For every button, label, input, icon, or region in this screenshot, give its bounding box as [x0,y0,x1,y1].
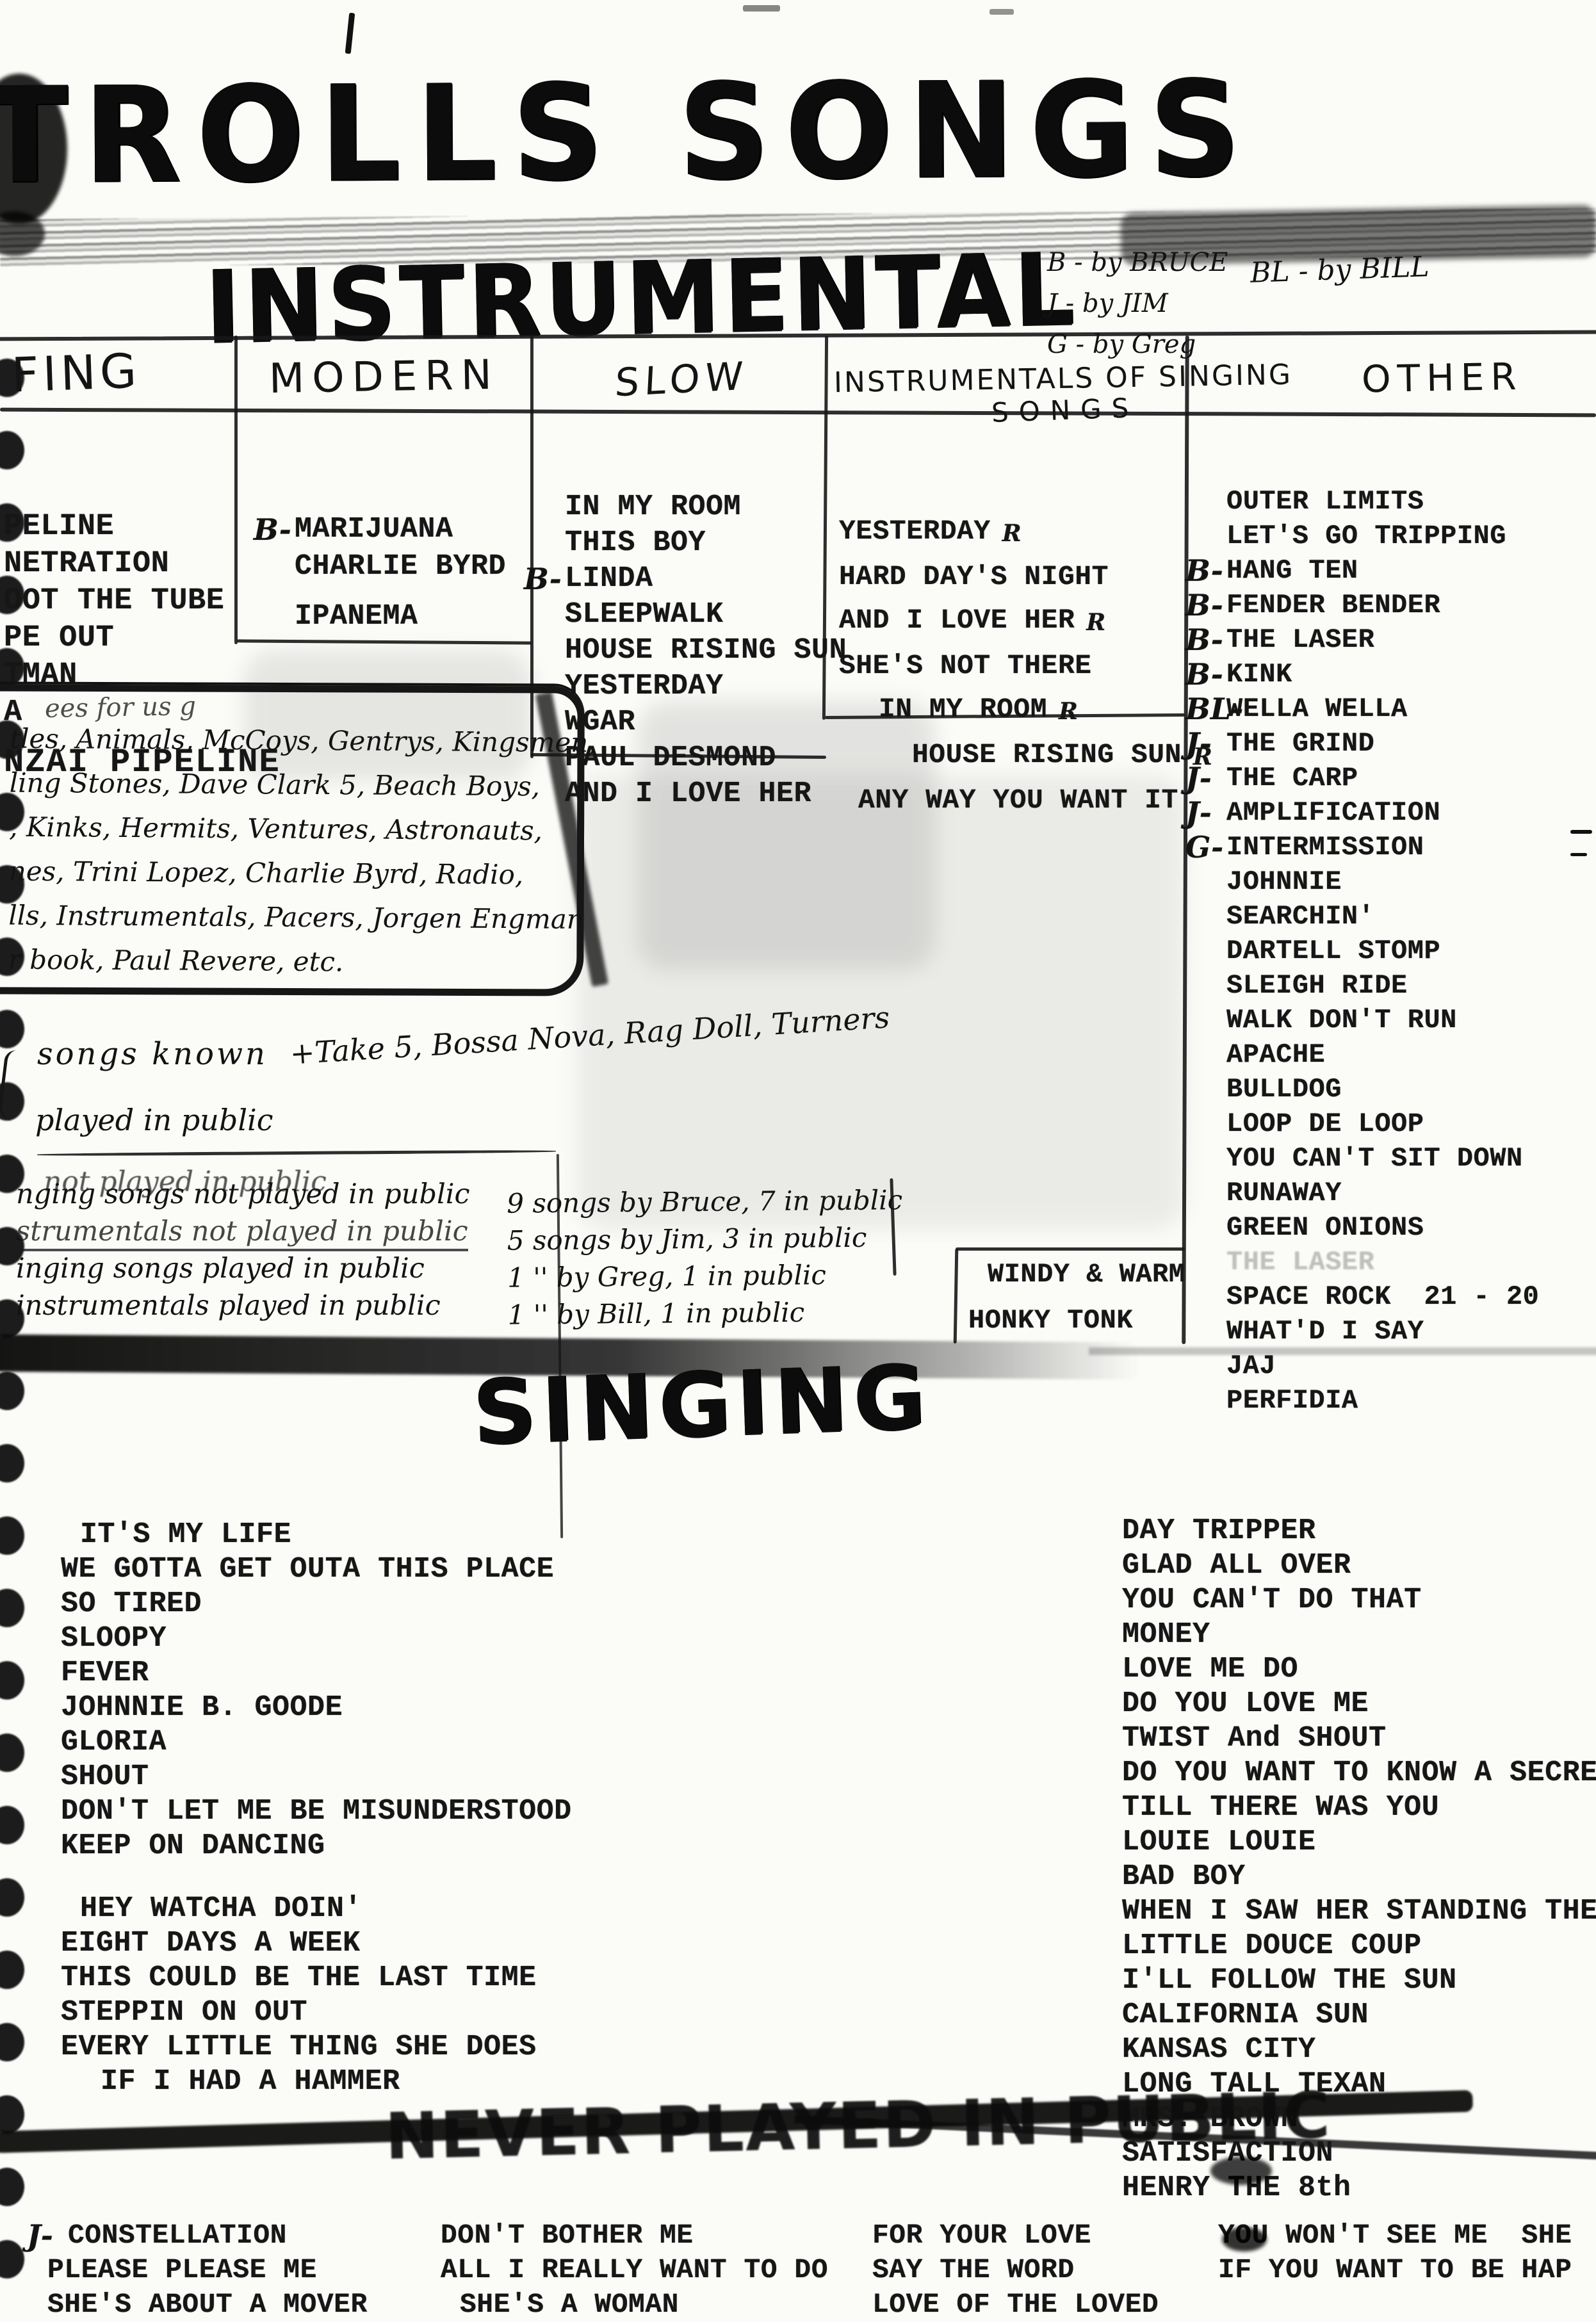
song-row: ANY WAY YOU WANT IT [839,779,1212,822]
spiral-hole [0,2095,24,2134]
instrumentals-of-singing-song-list: YESTERDAYRHARD DAY'S NIGHTAND I LOVE HER… [839,423,1212,822]
column-header-slow: SLOW [614,353,749,405]
song-count-line: 9 songs by Bruce, 7 in public [507,1181,902,1222]
song-row: THE LASER [1187,1245,1539,1279]
spiral-hole [0,1589,24,1627]
song-row: CHARLIE BYRD [255,548,506,585]
groups-note-line: tles, Animals, McCoys, Gentrys, Kingsmen… [10,717,618,765]
song-row: SHE'S ABOUT A MOVER [28,2287,368,2322]
scan-speck [345,13,355,54]
legend-entry: B - by BRUCE [1047,242,1228,283]
hand-drawn-line [954,1249,959,1344]
modern-song-list: B-MARIJUANACHARLIE BYRDIPANEMA [255,437,506,635]
hand-drawn-line [37,1149,556,1157]
song-row: HEY WATCHA DOIN' [61,1892,572,1926]
ink-blot [1222,2227,1267,2252]
song-row: GLAD ALL OVER [1122,1548,1596,1583]
song-row: SLEEPWALK [525,597,847,633]
spiral-hole [0,1010,24,1048]
song-row: DO YOU WANT TO KNOW A SECRE [1122,1756,1596,1790]
song-row: JOHNNIE [1187,865,1539,899]
bottom-song-list-2: DON'T BOTHER MEALL I REALLY WANT TO DOSH… [441,2149,828,2322]
category-key-line: strumentals not played in public [16,1213,470,1250]
song-row: DARTELL STOMP [1187,934,1539,968]
legend-entry: J - by JIM [1047,283,1228,324]
song-row: LOVE OF THE LOVED [872,2287,1159,2322]
hand-drawn-line [237,639,532,644]
song-row: SEARCHIN' [1187,899,1539,934]
spiral-hole [0,1733,24,1772]
song-row: J-CONSTELLATION [28,2218,368,2253]
song-row: JAJ [1187,1349,1539,1383]
song-row: FEVER [61,1656,572,1691]
song-row: B-HANG TEN [1187,553,1539,588]
corner-song-honky-tonk: HONKY TONK [968,1303,1133,1338]
song-row: B-MARIJUANA [255,511,506,548]
song-row: IF I HAD A HAMMER [61,2065,572,2099]
bottom-song-list-1: J-CONSTELLATIONPLEASE PLEASE MESHE'S ABO… [28,2149,368,2322]
song-row: B-LINDA [525,561,847,597]
song-row: BAD BOY [1122,1860,1596,1894]
hand-drawn-line [956,1247,1185,1251]
song-row: DON'T LET ME BE MISUNDERSTOOD [61,1794,572,1829]
scan-speck [1570,853,1587,856]
song-row: IT'S MY LIFE [61,1518,572,1552]
song-row: ALL I REALLY WANT TO DO [441,2253,828,2287]
song-row: J-THE GRIND [1187,726,1539,761]
song-row: LITTLE DOUCE COUP [1122,1929,1596,1963]
song-row: B-THE LASER [1187,622,1539,657]
song-row: BL-WELLA WELLA [1187,692,1539,726]
song-row: SHE'S NOT THERE [839,644,1212,688]
song-row: PELINE [4,508,281,546]
spiral-hole [0,1878,24,1917]
song-row: RUNAWAY [1187,1176,1539,1210]
song-row: SHE'S A WOMAN [441,2287,828,2322]
other-song-list: OUTER LIMITSLET'S GO TRIPPINGB-HANG TENB… [1187,415,1539,1418]
song-row: KANSAS CITY [1122,2033,1596,2067]
song-row: JOHNNIE B. GOODE [61,1691,572,1725]
column-header-instrumentals-of-singing: INSTRUMENTALS OF SINGING [834,359,1293,399]
song-row: WALK DON'T RUN [1187,1003,1539,1037]
song-row: EVERY LITTLE THING SHE DOES [61,2030,572,2065]
song-row: DAY TRIPPER [1122,1514,1596,1548]
song-row: I'LL FOLLOW THE SUN [1122,1963,1596,1998]
song-row: APACHE [1187,1037,1539,1072]
song-row: WHEN I SAW HER STANDING THE [1122,1894,1596,1929]
scan-speck [1570,830,1592,834]
song-row: YOU CAN'T DO THAT [1122,1583,1596,1618]
brace-mark [0,1049,28,1121]
song-row: PERFIDIA [1187,1383,1539,1418]
song-row: IN MY ROOM [525,489,847,525]
category-key-list: nging songs not played in publicstrument… [16,1176,470,1324]
song-row: LOUIE LOUIE [1122,1825,1596,1860]
singing-heading: SINGING [471,1345,932,1465]
song-row: KEEP ON DANCING [61,1829,572,1863]
song-row: NETRATION [4,546,281,583]
category-key-line: instrumentals played in public [16,1287,470,1324]
spiral-hole [0,1806,24,1844]
song-row: OOT THE TUBE [4,583,281,620]
spiral-hole [0,2240,24,2278]
song-row: YOU CAN'T SIT DOWN [1187,1141,1539,1176]
song-row: OUTER LIMITS [1187,484,1539,519]
song-row: CALIFORNIA SUN [1122,1998,1596,2033]
song-row: TWIST And SHOUT [1122,1721,1596,1756]
groups-note-list: tles, Animals, McCoys, Gentrys, Kingsmen… [8,717,619,986]
song-row: MONEY [1122,1618,1596,1652]
scanned-song-list-page: { "title": "TROLLS SONGS", "instrumental… [0,0,1596,2250]
song-row: YESTERDAYR [839,510,1212,555]
song-row: PLEASE PLEASE ME [28,2253,368,2287]
song-row: FOR YOUR LOVE [872,2218,1159,2253]
song-row: TILL THERE WAS YOU [1122,1790,1596,1825]
song-row: DO YOU LOVE ME [1122,1687,1596,1721]
song-count-line: 1 '' by Greg, 1 in public [507,1256,903,1296]
page-title: TROLLS SONGS [0,52,1256,213]
song-row: WE GOTTA GET OUTA THIS PLACE [61,1552,572,1587]
column-header-modern: MODERN [268,352,500,403]
song-row: THIS COULD BE THE LAST TIME [61,1961,572,1995]
column-header-other: OTHER [1361,355,1523,401]
song-row: AND I LOVE HERR [839,599,1212,644]
song-row: YOU WON'T SEE ME SHE [1218,2218,1572,2253]
song-row: HOUSE RISING SUNR [839,733,1212,779]
spiral-hole [0,1444,24,1482]
song-row: HOUSE RISING SUN [525,633,847,669]
bottom-song-list-3: FOR YOUR LOVESAY THE WORDLOVE OF THE LOV… [872,2149,1159,2322]
song-row: SLOOPY [61,1621,572,1656]
song-row: EIGHT DAYS A WEEK [61,1926,572,1961]
song-row: J-AMPLIFICATION [1187,795,1539,830]
instrumental-heading: INSTRUMENTAL [204,231,1079,365]
song-row: IF YOU WANT TO BE HAP [1218,2253,1572,2287]
song-row: GLORIA [61,1725,572,1760]
category-key-line: inging songs played in public [16,1250,470,1287]
groups-note-line: r book, Paul Revere, etc. [8,938,617,986]
scan-speck [743,5,780,12]
song-row: SHOUT [61,1760,572,1794]
song-row: B-KINK [1187,657,1539,692]
legend-entry: G - by Greg [1047,324,1228,365]
song-row: SPACE ROCK 21 - 20 [1187,1279,1539,1314]
song-count-line: 5 songs by Jim, 3 in public [507,1219,903,1259]
song-row: LOOP DE LOOP [1187,1107,1539,1141]
song-row: B-FENDER BENDER [1187,588,1539,622]
song-row: DON'T BOTHER ME [441,2218,828,2253]
groups-note-line: , Kinks, Hermits, Ventures, Astronauts, [9,805,617,854]
song-row: SO TIRED [61,1587,572,1621]
spiral-hole [0,1372,24,1410]
spiral-hole [0,1516,24,1555]
song-row: HARD DAY'S NIGHT [839,555,1212,599]
song-row: G-INTERMISSION [1187,830,1539,865]
song-row: SLEIGH RIDE [1187,968,1539,1003]
song-count-line: 1 '' by Bill, 1 in public [508,1293,904,1333]
singing-left-song-list: IT'S MY LIFEWE GOTTA GET OUTA THIS PLACE… [61,1449,572,2099]
spiral-hole [0,2023,24,2061]
column-header-surfing: FING [11,344,142,403]
note-songs-known: songs known [37,1036,268,1072]
song-row: LOVE ME DO [1122,1652,1596,1687]
spiral-hole [0,2168,24,2206]
scan-speck [989,9,1014,15]
song-row: STEPPIN ON OUT [61,1995,572,2030]
ink-blot [1210,2157,1272,2185]
song-count-list: 9 songs by Bruce, 7 in public5 songs by … [507,1181,904,1333]
spiral-hole [0,1661,24,1700]
groups-note-line: lls, Instrumentals, Pacers, Jorgen Engma… [8,893,617,942]
category-key-line: nging songs not played in public [16,1176,470,1213]
song-row: THIS BOY [525,525,847,561]
corner-song-windy-and-warm: WINDY & WARM [988,1256,1185,1292]
song-row: J-THE CARP [1187,761,1539,795]
groups-note-line: ling Stones, Dave Clark 5, Beach Boys, [9,761,617,809]
song-row: IN MY ROOMR [839,688,1212,733]
note-played-in-public: played in public [35,1103,273,1137]
author-legend: B - by BRUCEJ - by JIMG - by Greg [1047,242,1228,365]
legend-entry-bill: BL - by BILL [1250,250,1429,289]
song-row: LET'S GO TRIPPING [1187,519,1539,553]
song-row: GREEN ONIONS [1187,1210,1539,1245]
song-row: IPANEMA [255,598,506,635]
song-row: WHAT'D I SAY [1187,1314,1539,1349]
song-row: BULLDOG [1187,1072,1539,1107]
song-row: PE OUT [4,620,281,657]
song-row: SAY THE WORD [872,2253,1159,2287]
groups-note-line: nes, Trini Lopez, Charlie Byrd, Radio, [9,849,617,898]
spiral-hole [0,1951,24,1989]
